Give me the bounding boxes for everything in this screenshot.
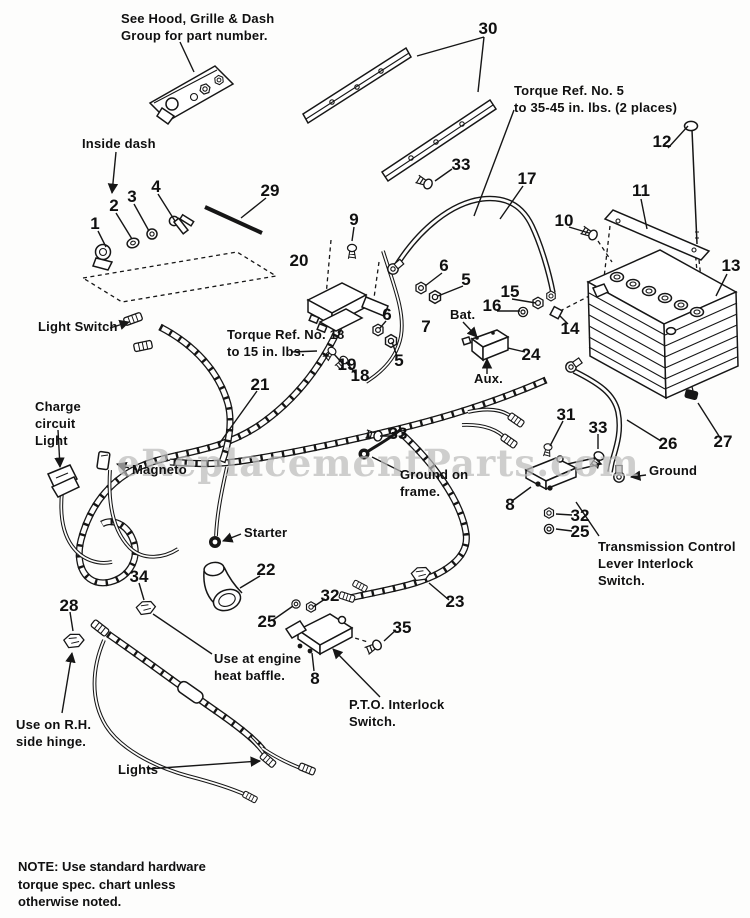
part-number-23: 23	[446, 592, 465, 612]
part-number-12: 12	[653, 132, 672, 152]
annotation-rh-hinge: Use on R.H. side hinge.	[16, 716, 91, 750]
annotation-torque-ref-5: Torque Ref. No. 5 to 35-45 in. lbs. (2 p…	[514, 82, 677, 116]
part-number-6: 6	[382, 305, 391, 325]
annotation-lights: Lights	[118, 761, 158, 778]
part-number-26: 26	[659, 434, 678, 454]
part-number-7: 7	[421, 317, 430, 337]
part-number-33: 33	[389, 424, 408, 444]
annotation-torque-ref-18: Torque Ref. No. 18 to 15 in. lbs.	[227, 326, 344, 360]
annotation-transmission-switch: Transmission Control Lever Interlock Swi…	[598, 538, 736, 589]
part-number-3: 3	[127, 187, 136, 207]
annotation-charge-circuit-light: Charge circuit Light	[35, 398, 81, 449]
part-number-21: 21	[251, 375, 270, 395]
part-number-32: 32	[321, 586, 340, 606]
annotation-magneto: Magneto	[132, 461, 187, 478]
part-number-16: 16	[483, 296, 502, 316]
parts-diagram: eReplacementParts.com NOTE: Use standard…	[0, 0, 750, 918]
labels-overlay: NOTE: Use standard hardware torque spec.…	[0, 0, 750, 918]
part-number-8: 8	[505, 495, 514, 515]
part-number-2: 2	[109, 196, 118, 216]
annotation-inside-dash: Inside dash	[82, 135, 156, 152]
annotation-aux: Aux.	[474, 370, 503, 387]
part-number-4: 4	[151, 177, 160, 197]
part-number-33: 33	[589, 418, 608, 438]
part-number-13: 13	[722, 256, 741, 276]
part-number-18: 18	[351, 366, 370, 386]
annotation-ground: Ground	[649, 462, 697, 479]
part-number-10: 10	[555, 211, 574, 231]
part-number-20: 20	[290, 251, 309, 271]
annotation-ground-on-frame: Ground on frame.	[400, 466, 468, 500]
part-number-15: 15	[501, 282, 520, 302]
note-text: NOTE: Use standard hardware torque spec.…	[18, 858, 206, 911]
part-number-34: 34	[130, 567, 149, 587]
part-number-11: 11	[632, 181, 650, 201]
part-number-5: 5	[394, 351, 403, 371]
part-number-35: 35	[393, 618, 412, 638]
annotation-heat-baffle: Use at engine heat baffle.	[214, 650, 301, 684]
part-number-14: 14	[561, 319, 580, 339]
part-number-24: 24	[522, 345, 541, 365]
part-number-29: 29	[261, 181, 280, 201]
part-number-33: 33	[452, 155, 471, 175]
part-number-30: 30	[479, 19, 498, 39]
annotation-bat: Bat.	[450, 306, 475, 323]
annotation-light-switch: Light Switch	[38, 318, 118, 335]
part-number-25: 25	[571, 522, 590, 542]
part-number-25: 25	[258, 612, 277, 632]
part-number-9: 9	[349, 210, 358, 230]
part-number-5: 5	[461, 270, 470, 290]
part-number-6: 6	[439, 256, 448, 276]
annotation-see-hood: See Hood, Grille & Dash Group for part n…	[121, 10, 274, 44]
annotation-pto-switch: P.T.O. Interlock Switch.	[349, 696, 444, 730]
part-number-22: 22	[257, 560, 276, 580]
part-number-27: 27	[714, 432, 733, 452]
part-number-1: 1	[90, 214, 99, 234]
annotation-starter: Starter	[244, 524, 287, 541]
part-number-28: 28	[60, 596, 79, 616]
part-number-8: 8	[310, 669, 319, 689]
part-number-31: 31	[557, 405, 576, 425]
part-number-17: 17	[518, 169, 537, 189]
